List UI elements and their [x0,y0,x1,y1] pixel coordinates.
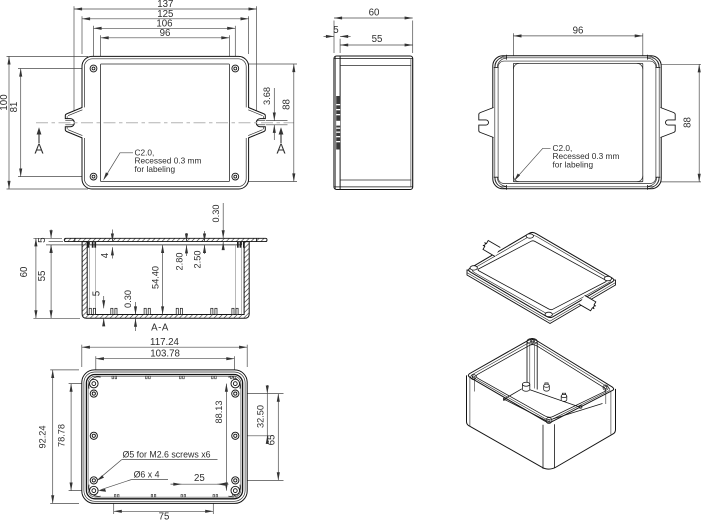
svg-text:55: 55 [37,271,48,282]
svg-text:3.68: 3.68 [262,87,272,105]
svg-text:60: 60 [19,266,30,277]
svg-text:2.80: 2.80 [174,253,184,271]
svg-text:55: 55 [372,34,383,45]
svg-text:4: 4 [100,252,111,258]
svg-text:96: 96 [160,28,171,39]
svg-text:54.40: 54.40 [150,266,160,289]
svg-text:117.24: 117.24 [150,337,180,348]
svg-text:for labeling: for labeling [135,164,176,174]
svg-text:65: 65 [266,435,277,446]
svg-text:5: 5 [333,25,338,36]
svg-text:75: 75 [159,512,170,523]
svg-text:32.50: 32.50 [255,405,265,428]
svg-text:88: 88 [683,117,694,128]
svg-text:103.78: 103.78 [150,348,180,359]
svg-text:A: A [276,142,285,157]
svg-text:88: 88 [281,99,292,110]
svg-text:0.30: 0.30 [123,290,133,308]
svg-text:Ø5 for M2.6 screws x6: Ø5 for M2.6 screws x6 [123,450,211,460]
svg-text:5: 5 [91,291,102,296]
svg-text:25: 25 [194,473,205,484]
svg-text:96: 96 [573,26,584,37]
svg-text:78.78: 78.78 [56,424,66,447]
svg-text:88.13: 88.13 [214,401,224,424]
svg-text:92.24: 92.24 [37,426,47,449]
svg-text:81: 81 [9,102,20,113]
svg-text:A: A [34,142,43,157]
svg-text:5: 5 [37,238,48,243]
svg-text:0.30: 0.30 [211,205,221,223]
svg-text:60: 60 [369,8,380,19]
svg-text:2.50: 2.50 [192,251,202,269]
svg-text:for labeling: for labeling [553,159,594,169]
svg-text:Ø6 x 4: Ø6 x 4 [134,470,160,480]
svg-text:A-A: A-A [151,322,169,333]
